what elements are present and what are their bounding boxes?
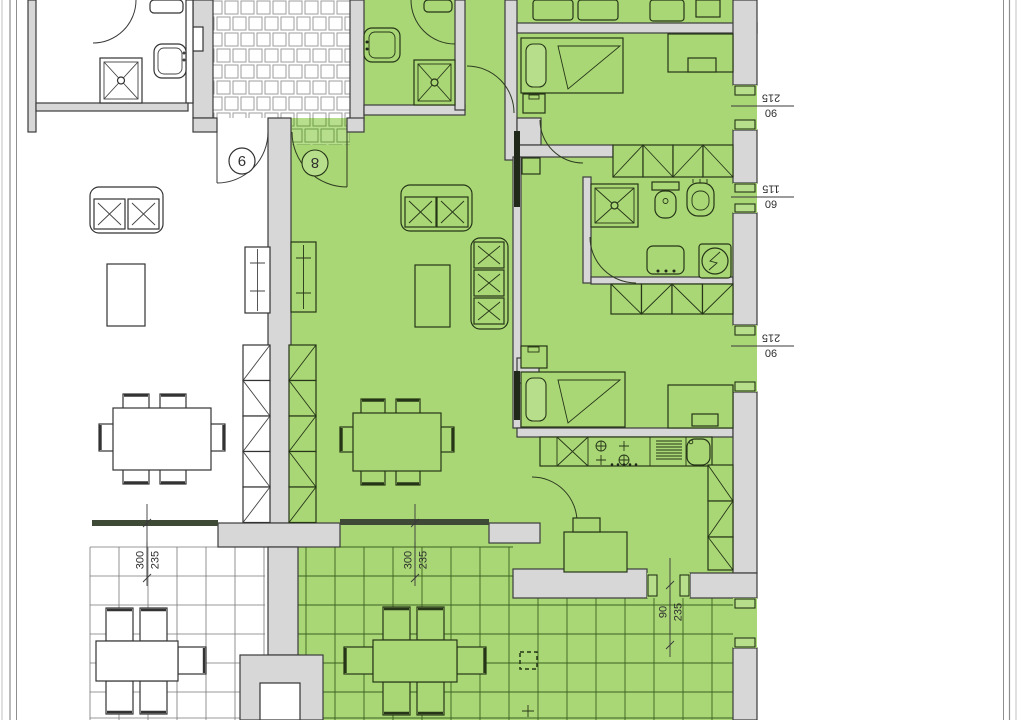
coffee-table-icon <box>415 265 450 327</box>
white-terrace-window-front <box>92 520 218 526</box>
sideboard-icon <box>107 264 145 326</box>
terrace-divider-wall <box>268 547 298 655</box>
drainer-icon <box>656 441 682 459</box>
toilet-icon <box>652 182 679 218</box>
kitchen-south-wall <box>690 573 757 598</box>
green-bath1-east-wall <box>455 0 465 110</box>
window-dimension-label: 90 215 <box>762 92 780 119</box>
vestibule-block <box>517 118 541 145</box>
sink-icon <box>364 28 400 62</box>
window-height: 90 <box>765 107 777 119</box>
green-bath1-south-wall <box>364 105 465 115</box>
window-width: 215 <box>762 92 780 104</box>
floor-plan-page: 9 8 <box>0 0 1019 720</box>
window-height: 90 <box>765 347 777 359</box>
kitchen-sink-icon <box>687 439 710 465</box>
wardrobe-icon <box>611 284 733 314</box>
terrace-width: 300 <box>135 551 147 569</box>
door9-left-jamb <box>193 118 217 132</box>
toilet-icon <box>424 0 452 12</box>
terrace-step-wall <box>489 523 540 543</box>
floor-plan-drawing: 9 8 <box>0 0 1019 720</box>
sliding-door <box>514 371 520 420</box>
entry-cabinet-icon <box>522 158 540 174</box>
right-unit-door-number: 8 <box>311 154 319 171</box>
entry-tile-floor <box>292 118 350 145</box>
east-exterior-wall <box>733 130 757 183</box>
partial-cushion <box>650 0 684 21</box>
white-unit-bathroom <box>93 0 186 103</box>
nightstand-icon <box>523 94 545 113</box>
left-unit-door-number: 9 <box>238 152 246 169</box>
door-frame-niche <box>193 27 203 51</box>
tall-cabinet-icon <box>708 465 733 570</box>
bed-icon <box>521 38 623 93</box>
terrace-height: 235 <box>418 551 430 569</box>
wardrobe-icon <box>243 345 270 523</box>
east-exterior-wall <box>733 0 757 85</box>
sink-icon <box>154 44 186 78</box>
terrace-width: 300 <box>403 551 415 569</box>
outdoor-table-icon <box>373 640 457 682</box>
white-bath-south-wall <box>36 103 188 111</box>
terrace-stair-opening <box>260 683 300 720</box>
partial-cushion <box>696 0 720 17</box>
door-arc <box>93 0 136 43</box>
sofa-icon <box>90 187 163 233</box>
bedroom1-north-wall <box>517 23 757 33</box>
desk-icon <box>668 385 733 428</box>
partial-cushion <box>578 0 618 20</box>
central-dividing-wall <box>268 118 291 523</box>
armchair-row-icon <box>471 238 508 329</box>
bedroom1-south-wall <box>517 145 613 157</box>
sink-icon <box>647 246 684 274</box>
bed-icon <box>521 372 625 427</box>
toilet-icon <box>150 0 183 13</box>
shower-icon <box>414 60 455 105</box>
terrace-top-wall <box>218 523 340 547</box>
stairwell-tile-floor <box>213 0 350 118</box>
kitchen-south-wall <box>513 569 647 598</box>
dining-table-icon <box>99 394 225 484</box>
door-width: 90 <box>658 606 670 618</box>
stairwell-left-wall <box>193 0 213 118</box>
shower-icon <box>100 58 142 103</box>
partial-cushion <box>533 0 573 20</box>
radiator-icon <box>291 242 316 312</box>
window-height: 60 <box>765 198 777 210</box>
wardrobe-icon <box>289 345 316 523</box>
bath2-west-wall <box>583 177 591 283</box>
door-height: 235 <box>673 603 685 621</box>
terrace-height: 235 <box>150 551 162 569</box>
shower-icon <box>591 184 638 227</box>
door8-right-jamb <box>347 118 364 132</box>
white-unit-west-wall <box>28 0 36 132</box>
sliding-door <box>514 131 520 207</box>
white-bath-right-wall <box>186 0 193 103</box>
window-width: 215 <box>762 332 780 344</box>
window-dimension-label: 90 215 <box>762 332 780 359</box>
outdoor-table-icon <box>96 641 178 681</box>
nightstand-icon <box>521 346 547 368</box>
east-exterior-wall <box>733 392 757 573</box>
kitchen-north-wall <box>517 428 733 437</box>
sofa-icon <box>401 185 472 231</box>
radiator-icon <box>245 247 270 313</box>
stairwell-right-wall <box>350 0 364 120</box>
wardrobe-icon <box>613 145 733 177</box>
water-heater-icon <box>699 244 731 278</box>
window-width: 115 <box>762 183 780 195</box>
white-terrace-furniture <box>96 608 206 714</box>
window-dimension-label: 60 115 <box>762 183 780 210</box>
east-exterior-wall <box>733 648 757 720</box>
desk-icon <box>668 34 733 72</box>
east-exterior-wall <box>733 213 757 325</box>
